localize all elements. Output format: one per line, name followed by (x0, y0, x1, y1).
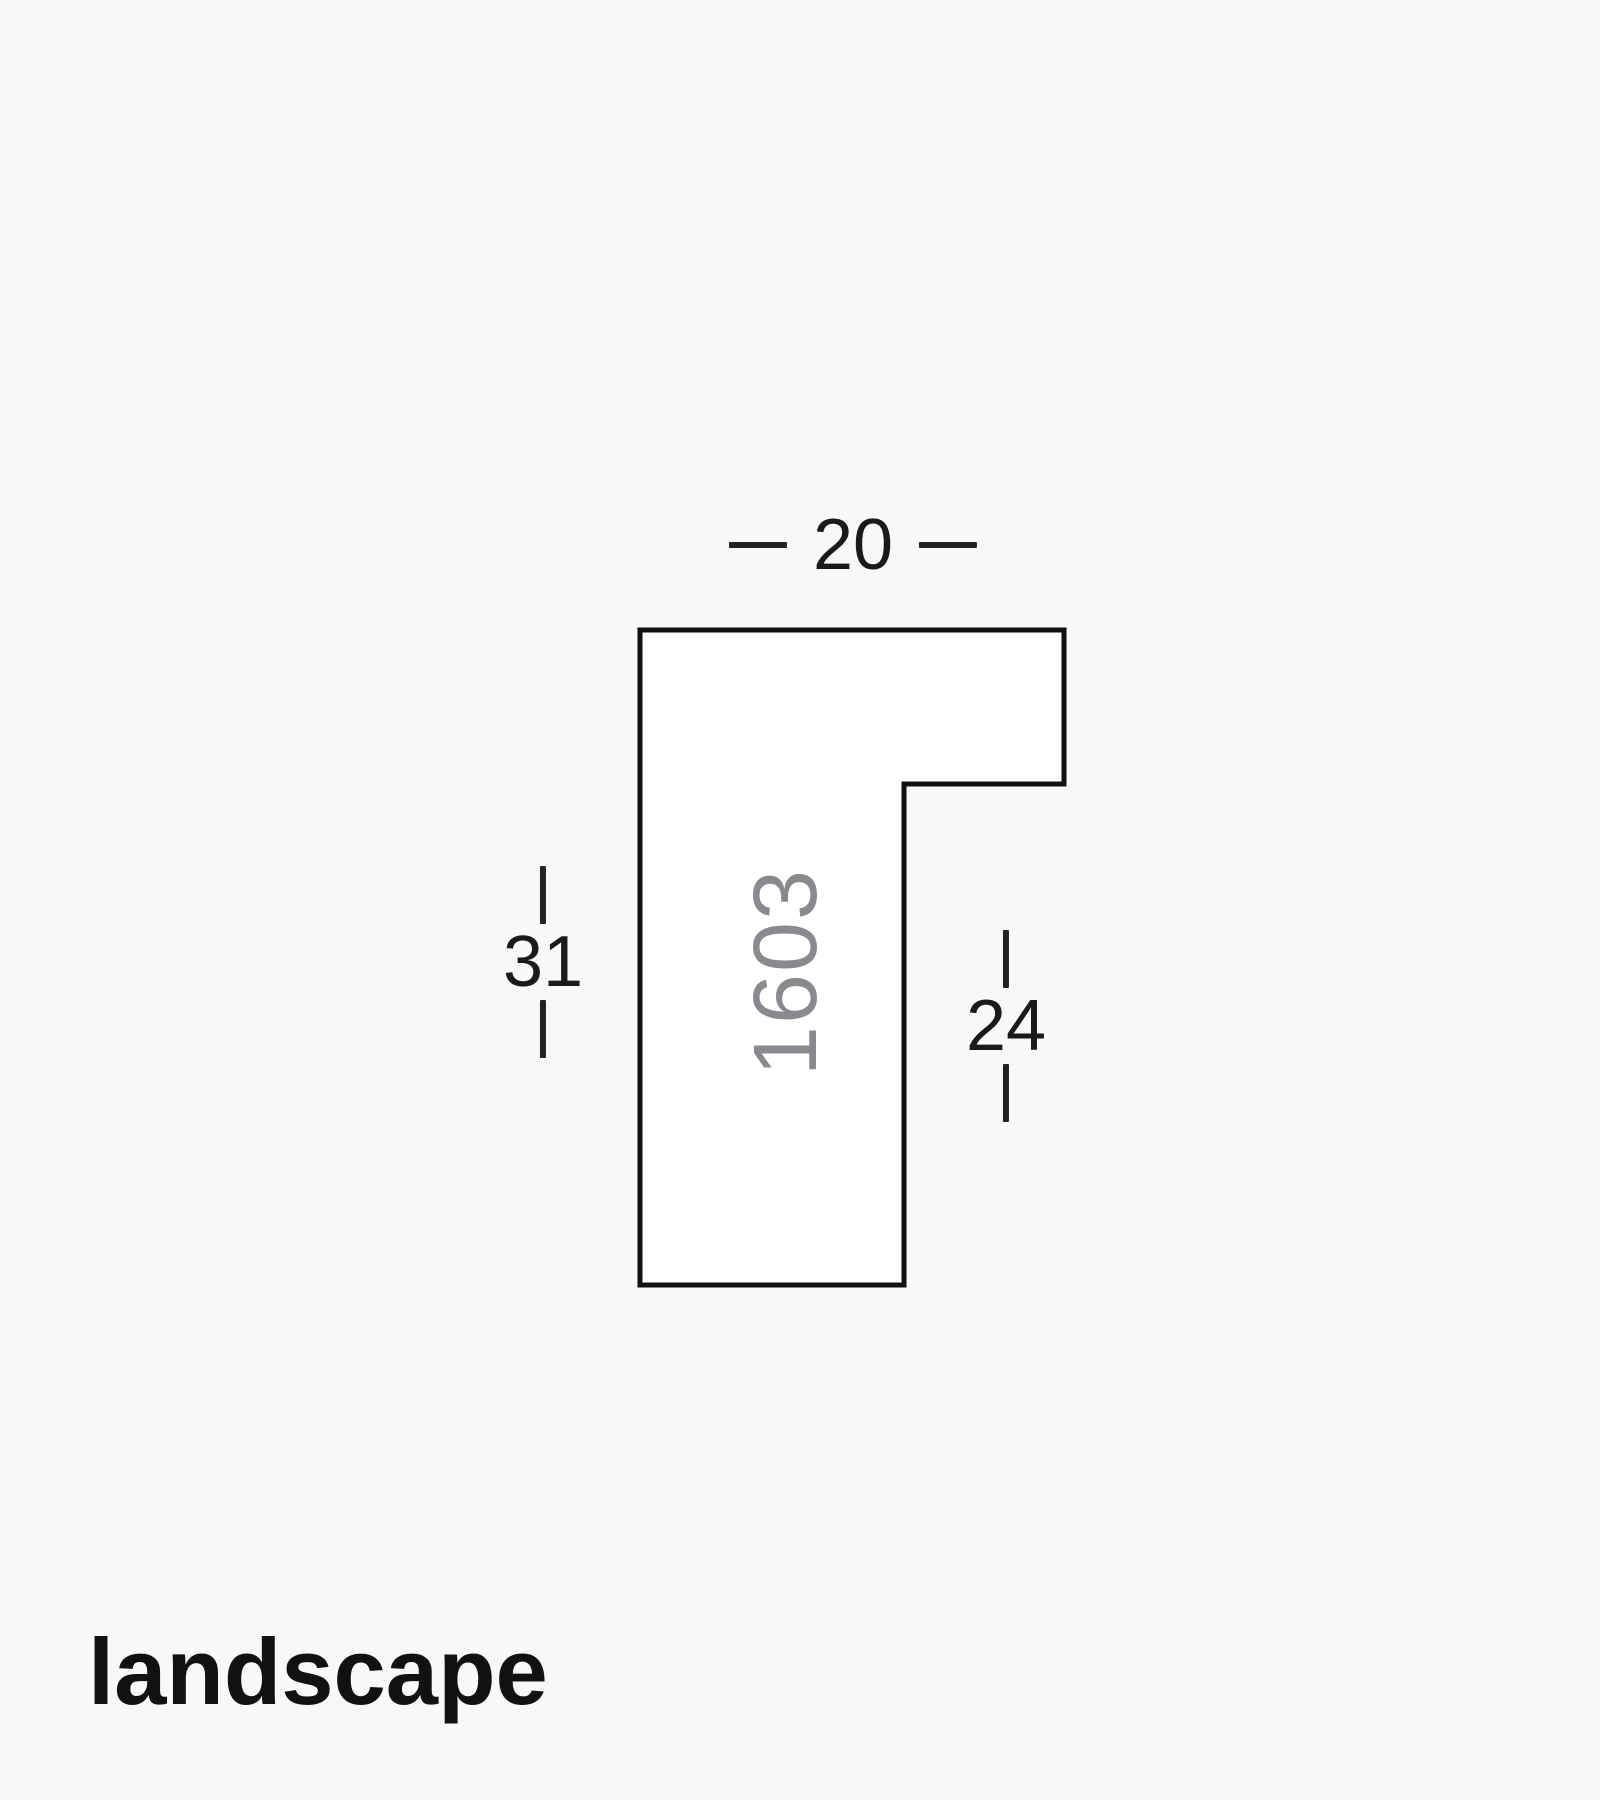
left-height-value: 31 (503, 926, 583, 998)
right-rebate-dimension: 24 (966, 930, 1046, 1122)
right-rebate-value: 24 (966, 990, 1046, 1062)
top-width-dimension: 20 (729, 509, 977, 581)
orientation-caption: landscape (88, 1625, 548, 1719)
dimension-tick-bottom (1003, 1064, 1009, 1122)
dimension-dash-right (919, 542, 977, 548)
dimension-dash-left (729, 542, 787, 548)
dimension-tick-bottom (540, 1000, 546, 1058)
dimension-tick-top (540, 866, 546, 924)
dimension-tick-top (1003, 930, 1009, 988)
profile-code-label: 1603 (741, 868, 831, 1076)
left-height-dimension: 31 (503, 866, 583, 1058)
frame-profile-diagram: 20 31 24 1603 landscape (0, 0, 1600, 1800)
top-width-value: 20 (813, 509, 893, 581)
